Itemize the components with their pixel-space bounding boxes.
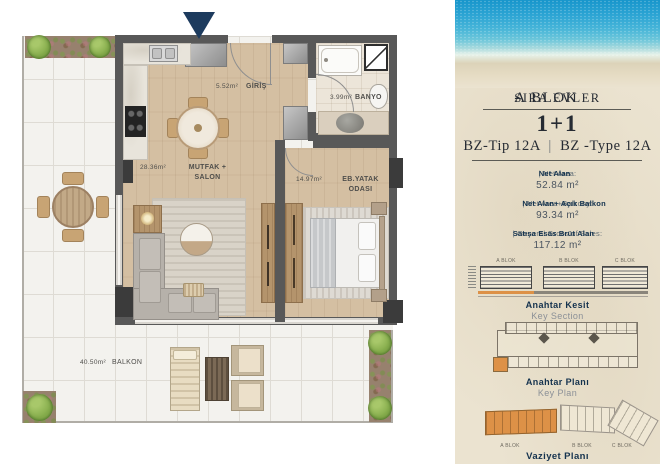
area-value: 93.34 m² <box>455 210 660 221</box>
wall-column <box>389 158 403 188</box>
wardrobe-handle <box>293 258 295 288</box>
bed-headboard <box>379 216 385 290</box>
sea-sparkle <box>455 0 660 58</box>
area-row-label: Satışa Esas Brüt Alan | General Groos of… <box>455 229 660 238</box>
bush-icon <box>27 35 51 59</box>
site-block-b <box>560 405 615 434</box>
section-base-line <box>478 296 648 297</box>
bathroom-window-icon <box>364 44 388 71</box>
floor-plan: GİRİŞ 5.52m² BANYO 3.99m² MUTFAK + SALON… <box>0 0 455 464</box>
site-block-label: C BLOK <box>597 443 647 449</box>
block-title-sep: - <box>514 90 521 107</box>
patio-chair <box>62 229 84 242</box>
block-title-left: A BLOK <box>514 90 578 107</box>
bed-blanket <box>310 218 336 288</box>
entrance-marker-icon <box>183 12 215 39</box>
bush-icon <box>368 331 392 355</box>
type-code: BZ-Tip 12A | BZ -Type 12A <box>455 138 660 155</box>
window-left <box>116 195 122 285</box>
room-name: MUTFAK + SALON <box>185 163 230 183</box>
wall-column <box>123 157 133 183</box>
outdoor-mat <box>205 357 229 401</box>
entry-door-leaf <box>270 43 271 85</box>
tv-console <box>261 203 275 303</box>
room-area: 40.50m² <box>80 358 106 367</box>
sink-basin <box>152 48 162 59</box>
patio-chair <box>96 196 109 218</box>
room-name: BANYO <box>355 93 382 103</box>
entry-closet <box>185 43 227 67</box>
key-section-block-label: B BLOK <box>543 258 595 264</box>
area-row-label: Net Alan+ Açık Balkon | Net Area+Balcony… <box>455 199 660 208</box>
divider-rule <box>483 109 631 110</box>
wall-column <box>383 300 403 323</box>
key-section-block-label: C BLOK <box>602 258 648 264</box>
area-row-label: Net Alan | Net Area: <box>455 169 660 178</box>
floor-lamp-icon <box>141 212 154 225</box>
bush-icon <box>89 36 111 58</box>
room-name: BALKON <box>112 358 142 368</box>
site-block-a <box>485 409 557 436</box>
sink-basin <box>165 48 175 59</box>
room-name: GİRİŞ <box>246 82 267 92</box>
section-axis-ticks <box>468 266 476 289</box>
patio-chair <box>37 196 50 218</box>
hall-closet-lower <box>283 106 308 140</box>
section-highlight-orange <box>478 291 534 294</box>
area-label-tr: Net Alan+ Açık Balkon <box>522 199 605 208</box>
armchair-cushion <box>238 348 261 373</box>
room-area: 14.97m² <box>296 175 322 184</box>
lounger-pillow <box>173 350 197 360</box>
room-area: 5.52m² <box>216 82 238 91</box>
section-block-c <box>602 266 648 289</box>
area-label-tr: Net Alan <box>539 169 571 178</box>
key-plan-top-cells <box>505 322 638 334</box>
pillow <box>358 254 376 282</box>
sofa-cushion <box>139 271 161 303</box>
coffee-table <box>180 223 213 256</box>
bush-icon <box>368 396 392 420</box>
area-value: 117.12 m² <box>455 240 660 251</box>
wall-column <box>115 287 133 317</box>
area-label-tr: Satışa Esas Brüt Alan <box>513 229 594 238</box>
nightstand <box>371 289 387 302</box>
nightstand <box>371 202 387 215</box>
type-code-en: BZ -Type 12A <box>560 138 652 154</box>
bedroom-wall-top-left <box>275 140 285 148</box>
area-value: 52.84 m² <box>455 180 660 191</box>
wall-top-right <box>272 35 397 43</box>
key-plan-title-tr: Anahtar Planı <box>455 377 660 387</box>
balcony-edge-bottom <box>22 421 393 423</box>
section-block-a <box>480 266 532 289</box>
table-centerpiece <box>194 124 202 132</box>
site-block-c <box>607 400 658 447</box>
cooktop <box>125 106 146 137</box>
sofa-cushion <box>139 238 161 270</box>
key-section-title-en: Key Section <box>455 311 660 321</box>
key-plan-title-en: Key Plan <box>455 388 660 398</box>
console-handle <box>267 262 269 286</box>
unit-type: 1+1 <box>455 111 660 137</box>
room-area: 28.36m² <box>140 163 166 172</box>
balcony-edge-left <box>22 36 24 423</box>
console-handle <box>267 225 269 249</box>
armchair-cushion <box>238 383 261 408</box>
pillow <box>358 222 376 250</box>
divider-wall <box>275 148 285 322</box>
patio-chair <box>62 172 84 185</box>
site-plan-title: Vaziyet Planı <box>455 451 660 462</box>
bush-icon <box>26 394 53 421</box>
block-title: A BLOK - SIRA EVLER <box>455 90 660 107</box>
hall-closet-upper <box>283 43 308 64</box>
bathroom-wall-upper <box>308 43 316 78</box>
key-plan-highlight-unit <box>493 357 508 372</box>
info-panel: A BLOK - SIRA EVLER 1+1 BZ-Tip 12A | BZ … <box>455 0 660 464</box>
patio-table <box>52 186 94 228</box>
bathtub-drain <box>324 58 328 62</box>
ottoman <box>183 283 204 297</box>
site-block-label: A BLOK <box>485 443 535 449</box>
bedroom-wall-top-right <box>313 140 397 148</box>
key-plan-bottom-cells <box>497 356 638 368</box>
room-area: 3.99m² <box>330 93 352 102</box>
beach-photo <box>455 0 660 88</box>
room-name: EB.YATAK ODASI <box>339 175 382 195</box>
wardrobe-handle <box>293 215 295 245</box>
brochure-page: GİRİŞ 5.52m² BANYO 3.99m² MUTFAK + SALON… <box>0 0 660 464</box>
type-code-tr: BZ-Tip 12A <box>463 138 540 154</box>
divider-rule <box>472 160 642 161</box>
section-block-b <box>543 266 595 289</box>
type-code-sep: | <box>544 138 556 154</box>
vanity-sink <box>336 113 364 133</box>
key-section-block-label: A BLOK <box>480 258 532 264</box>
key-section-title-tr: Anahtar Kesit <box>455 300 660 310</box>
